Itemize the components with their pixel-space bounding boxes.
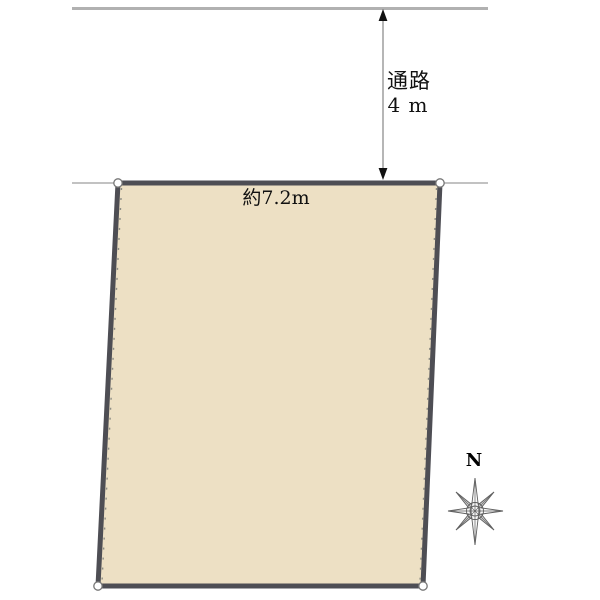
plot-outline (98, 183, 440, 586)
corner-marker-bottom-right (419, 582, 427, 590)
corner-marker-bottom-left (94, 582, 102, 590)
corner-marker-top-left (114, 179, 122, 187)
compass-rose-icon (448, 478, 503, 545)
plot-diagram-graphic (0, 0, 600, 600)
corner-marker-top-right (436, 179, 444, 187)
arrow-down-icon (379, 168, 388, 180)
compass-north-label: N (466, 452, 482, 470)
passage-dimension-label: 通路 (387, 71, 431, 92)
arrow-up-icon (379, 9, 388, 21)
frontage-dimension-label: 約7.2m (242, 189, 309, 208)
plot-diagram-canvas: 通路 4 m 約7.2m N (0, 0, 600, 600)
passage-dimension-value: 4 m (387, 95, 428, 115)
dimension-arrow (379, 9, 388, 180)
